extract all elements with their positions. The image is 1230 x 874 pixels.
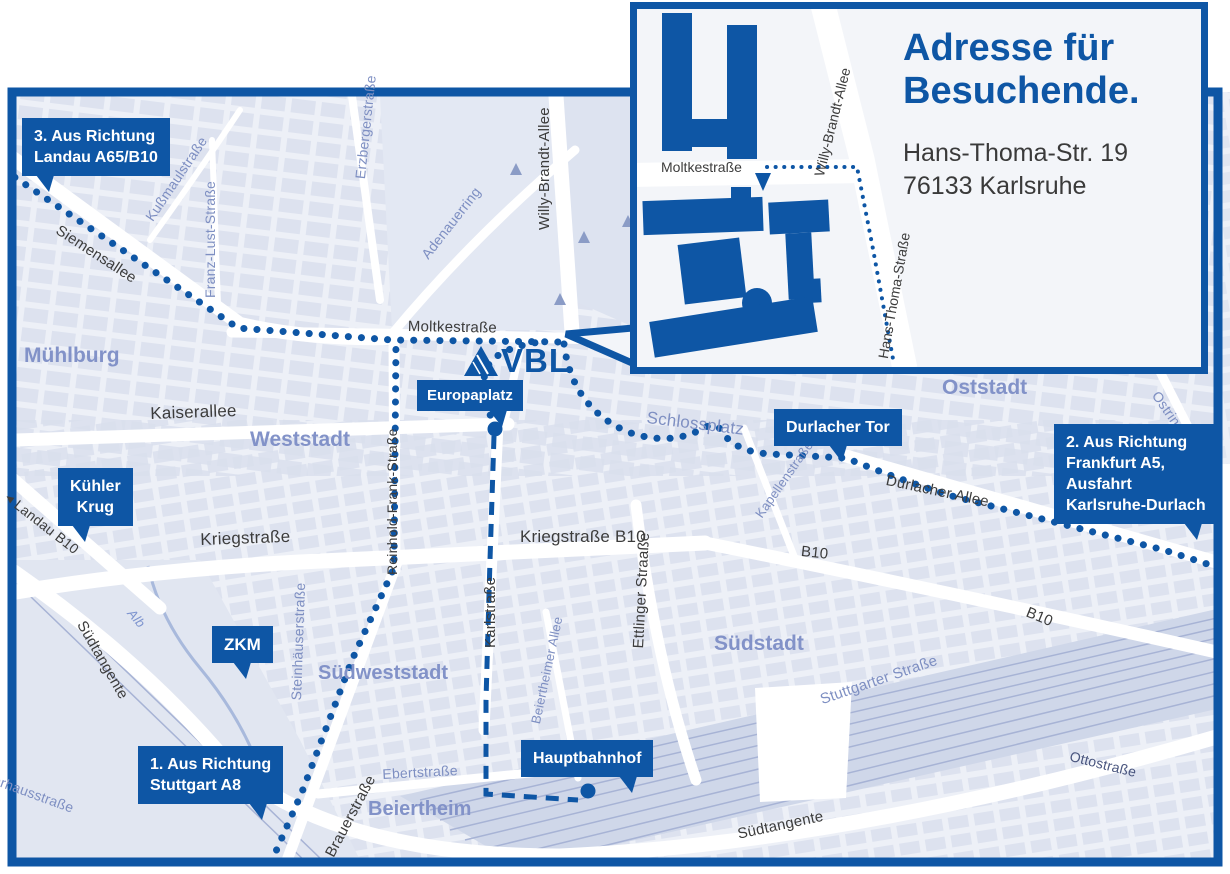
vbl-logo-triangle-icon (464, 346, 498, 376)
street-label-moltkestrasse: Moltkestraße (408, 318, 497, 337)
district-label-suedweststadt: Südweststadt (318, 662, 448, 685)
inset-street-label-moltkestrasse: Moltkestraße (661, 159, 742, 175)
badge-line: ZKM (224, 634, 261, 655)
badge-route-1: 1. Aus Richtung Stuttgart A8 (138, 746, 283, 804)
badge-route-3: 3. Aus Richtung Landau A65/B10 (22, 118, 170, 176)
badge-hauptbahnhof: Hauptbahnhof (521, 740, 653, 777)
street-label-kaiserallee: Kaiserallee (150, 401, 237, 424)
badge-line: Hauptbahnhof (533, 748, 641, 769)
district-label-beiertheim: Beiertheim (368, 798, 471, 821)
district-label-weststadt: Weststadt (250, 428, 350, 452)
badge-line: Durlacher Tor (786, 417, 890, 438)
badge-durlacher-tor: Durlacher Tor (774, 409, 902, 446)
street-label-reinhold-frank-strasse: Reinhold-Frank-Straße (384, 428, 400, 575)
street-label-b10-south: B10 (800, 543, 829, 563)
street-label-kriegstrasse-b10: Kriegstraße B10 (520, 527, 646, 547)
street-label-karlstrasse: Karlstraße (482, 577, 499, 648)
address-line-2: 76133 Karlsruhe (903, 170, 1191, 203)
vbl-logo-text: VBL (501, 342, 570, 380)
inset-h-building (662, 13, 757, 159)
badge-line: Stuttgart A8 (150, 775, 271, 796)
street-label-franz-lust-strasse: Franz-Lust-Straße (202, 181, 218, 298)
badge-line: Europaplatz (427, 386, 513, 405)
street-label-kriegstrasse: Kriegstraße (200, 527, 291, 550)
badge-line: Karlsruhe-Durlach (1066, 495, 1206, 516)
hauptbahnhof-station-dot (581, 784, 596, 799)
address-inset-panel: Moltkestraße Willy-Brandt-Allee Hans-Tho… (630, 2, 1208, 374)
badge-line: Kühler (70, 476, 121, 497)
badge-line: Landau A65/B10 (34, 147, 158, 168)
inset-title: Adresse für Besuchende. (903, 27, 1191, 113)
district-label-suedstadt: Südstadt (714, 632, 804, 656)
badge-europaplatz: Europaplatz (417, 380, 523, 411)
inset-vbl-campus-buildings (642, 187, 829, 358)
address-line-1: Hans-Thoma-Str. 19 (903, 137, 1191, 170)
badge-line: Ausfahrt (1066, 474, 1206, 495)
badge-line: 3. Aus Richtung (34, 126, 158, 147)
district-label-oststadt: Oststadt (942, 376, 1027, 400)
district-label-muehlburg: Mühlburg (24, 344, 120, 368)
badge-route-2: 2. Aus Richtung Frankfurt A5, Ausfahrt K… (1054, 424, 1218, 524)
badge-zkm: ZKM (212, 626, 273, 663)
badge-line: 1. Aus Richtung (150, 754, 271, 775)
badge-line: 2. Aus Richtung (1066, 432, 1206, 453)
badge-line: Krug (70, 497, 121, 518)
badge-line: Frankfurt A5, (1066, 453, 1206, 474)
vbl-logo: VBL (464, 342, 570, 380)
street-label-willy-brandt-allee: Willy-Brandt-Allee (536, 107, 553, 230)
vbl-directions-map: Siemensallee Kußmaulstraße Franz-Lust-St… (0, 0, 1230, 874)
inset-text-block: Adresse für Besuchende. Hans-Thoma-Str. … (903, 27, 1191, 203)
badge-kuehler-krug: Kühler Krug (58, 468, 133, 526)
